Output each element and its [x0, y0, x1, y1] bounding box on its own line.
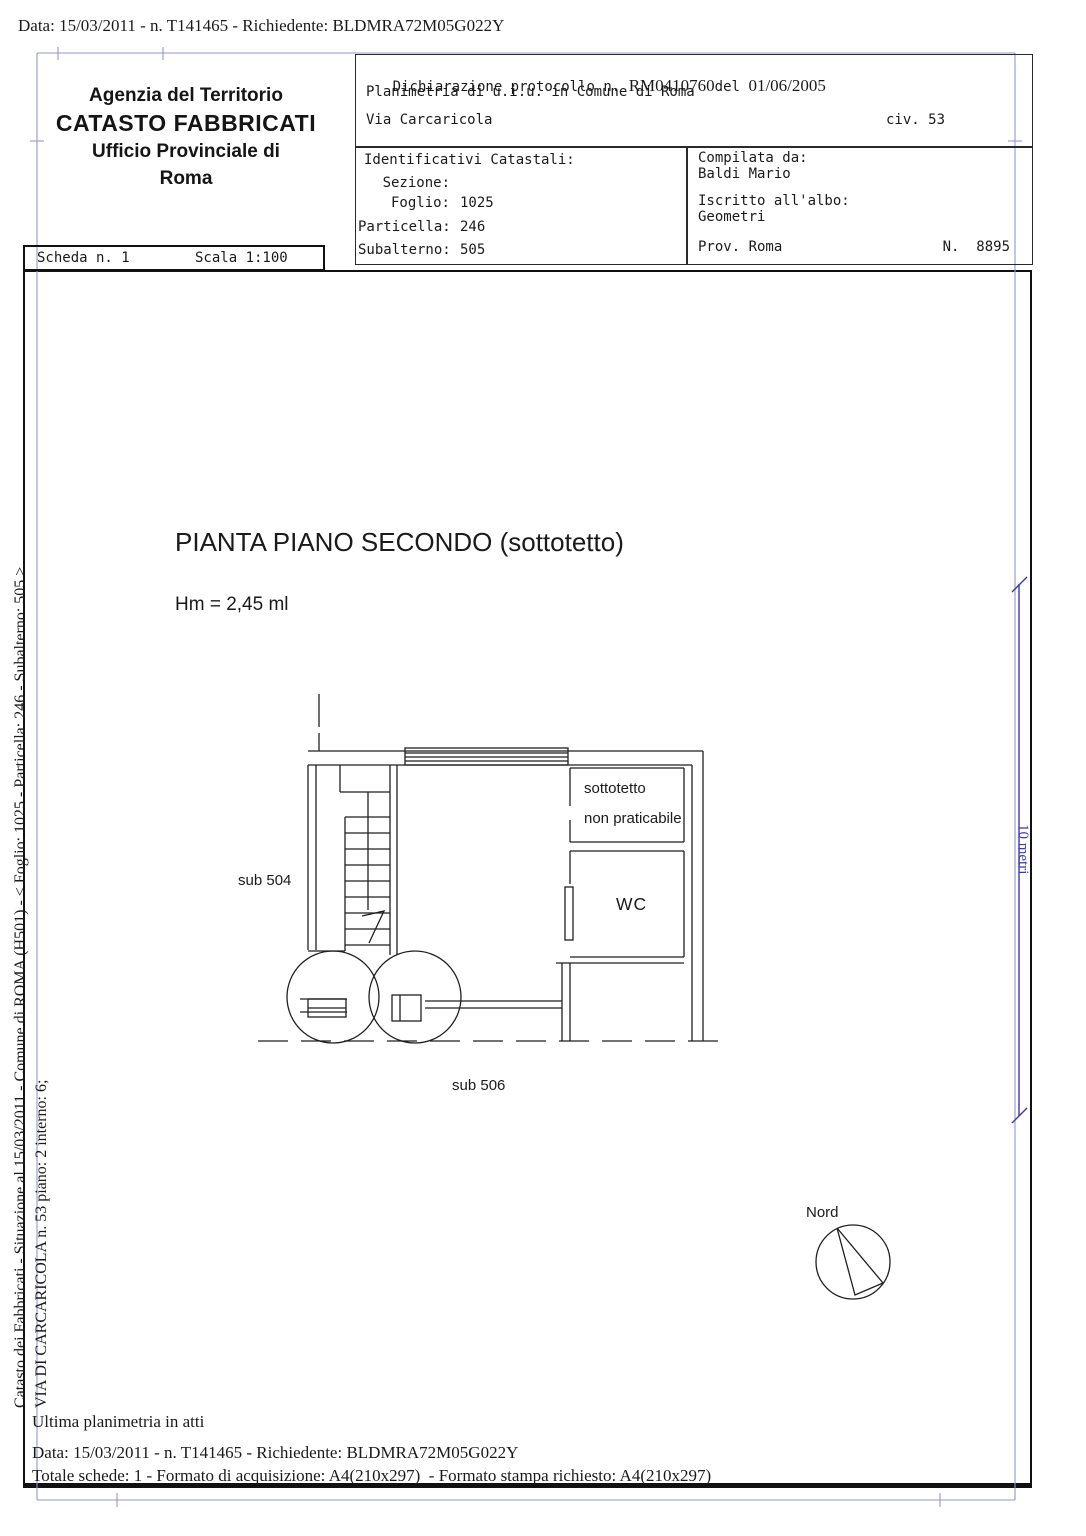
floor-plan-walls — [308, 694, 703, 1041]
civic-number: civ. 53 — [886, 112, 945, 128]
protocol-date: 01/06/2005 — [740, 76, 826, 95]
sheet-scale: Scala 1:100 — [195, 250, 288, 266]
wc-door-leaf — [565, 887, 573, 940]
identifiers-title: Identificativi Catastali: — [364, 152, 575, 168]
sidebar-address-reference: VIA DI CARCARICOLA n. 53 piano: 2 intern… — [33, 1026, 54, 1408]
cadastral-document-page: Data: 15/03/2011 - n. T141465 - Richiede… — [0, 0, 1086, 1536]
identifier-row-sezione: Sezione: — [358, 175, 460, 191]
label-nord: Nord — [806, 1204, 839, 1221]
identifier-label: Foglio: — [358, 195, 450, 211]
identifiers-box: Identificativi Catastali: Sezione: Fogli… — [355, 147, 1033, 265]
identifier-label: Particella: — [358, 219, 450, 235]
street-name: Via Carcaricola — [366, 112, 492, 128]
compiler-name: Baldi Mario — [698, 166, 791, 182]
label-sub-506: sub 506 — [452, 1077, 505, 1094]
plan-title: PIANTA PIANO SECONDO (sottotetto) — [175, 527, 624, 558]
sidebar-cadastral-reference: Catasto dei Fabbricati - Situazione al 1… — [12, 442, 33, 1408]
footer-ultima-planimetria: Ultima planimetria in atti — [32, 1412, 204, 1432]
label-non-praticabile: non praticabile — [584, 810, 682, 827]
plan-height-note: Hm = 2,45 ml — [175, 594, 289, 616]
identifier-value: 505 — [460, 242, 485, 258]
sheet-scale-box: Scheda n. 1 Scala 1:100 — [23, 245, 325, 271]
label-sub-504: sub 504 — [238, 872, 291, 889]
compiler-label: Compilata da: — [698, 150, 808, 166]
protocol-del: del — [715, 79, 740, 95]
curved-balcony-doors — [287, 951, 461, 1043]
agency-provincial-office: Ufficio Provinciale di — [30, 138, 342, 165]
footer-totale-schede: Totale schede: 1 - Formato di acquisizio… — [32, 1466, 711, 1486]
agency-header: Agenzia del Territorio CATASTO FABBRICAT… — [30, 82, 342, 192]
compiler-albo-value: Geometri — [698, 209, 765, 225]
identifier-row-subalterno: Subalterno:505 — [358, 242, 485, 258]
compiler-province: Prov. Roma — [698, 239, 782, 255]
identifier-label: Subalterno: — [358, 242, 450, 258]
stair-direction-arrow — [362, 911, 384, 943]
identifier-value: 1025 — [460, 195, 494, 211]
request-header-line: Data: 15/03/2011 - n. T141465 - Richiede… — [18, 16, 504, 36]
sheet-number: Scheda n. 1 — [37, 250, 130, 266]
staircase — [308, 765, 397, 955]
planimetria-line: Planimetria di u.i.u. in Comune di Roma — [366, 84, 695, 100]
identifier-row-foglio: Foglio:1025 — [358, 195, 494, 211]
label-wc: WC — [616, 894, 647, 915]
agency-office: CATASTO FABBRICATI — [30, 109, 342, 138]
identifier-row-particella: Particella:246 — [358, 219, 485, 235]
dimension-label-10-metri: 10 metri — [1014, 824, 1031, 919]
north-compass-icon — [816, 1225, 890, 1299]
agency-name: Agenzia del Territorio — [30, 82, 342, 109]
footer-request-line: Data: 15/03/2011 - n. T141465 - Richiede… — [32, 1443, 518, 1463]
declaration-box: Dichiarazione protocollo n. RM0410760del… — [355, 54, 1033, 147]
compiler-albo-label: Iscritto all'albo: — [698, 193, 850, 209]
identifier-label: Sezione: — [358, 175, 450, 191]
identifier-value: 246 — [460, 219, 485, 235]
compiler-register-number: N. 8895 — [943, 239, 1010, 255]
box-divider — [686, 148, 688, 264]
label-sottotetto: sottotetto — [584, 780, 646, 797]
agency-city: Roma — [30, 165, 342, 192]
